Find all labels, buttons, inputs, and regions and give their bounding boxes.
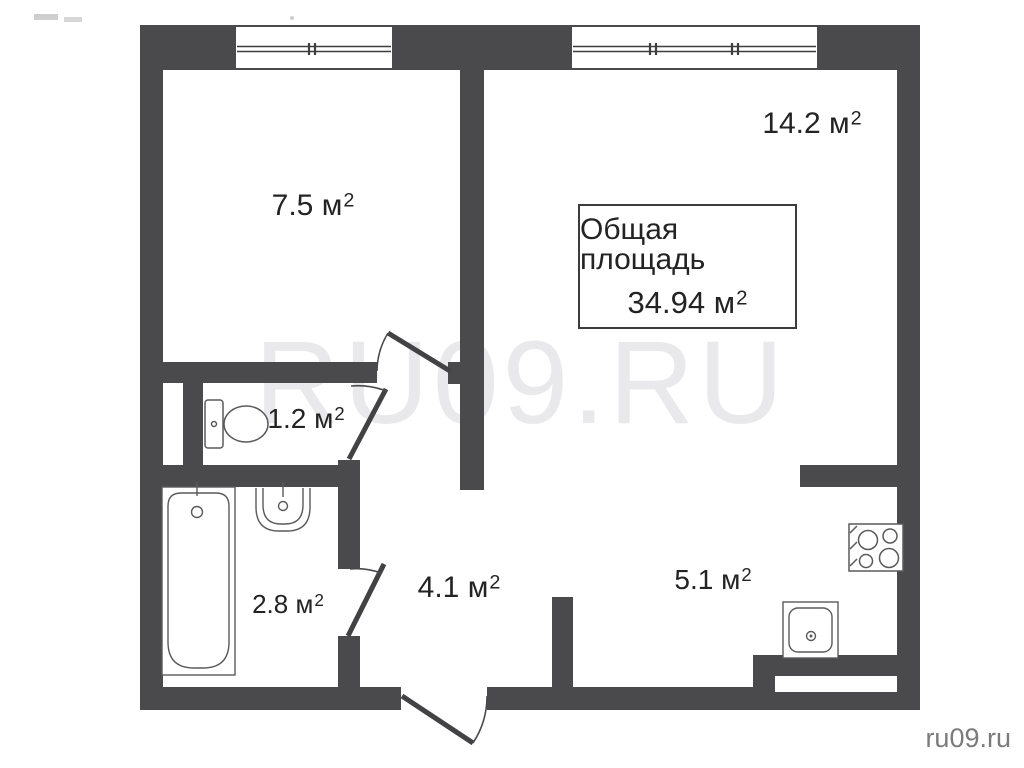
stove-fixture <box>849 524 903 571</box>
room-label-4-1: 4.1 м2 <box>418 573 501 603</box>
kitchen-wall-step <box>753 655 775 710</box>
total-value: 34.94 м <box>628 285 736 320</box>
room-label-2-8: 2.8 м2 <box>252 591 324 617</box>
area-sup: 2 <box>741 566 751 584</box>
area-sup: 2 <box>489 574 500 594</box>
area-value: 2.8 м <box>252 589 313 619</box>
toilet-tank <box>205 400 223 448</box>
bathtub-box <box>162 487 235 675</box>
area-value: 4.1 м <box>418 571 489 604</box>
total-area-title: Общая площадь <box>580 215 795 275</box>
wall-right <box>897 25 920 710</box>
fixtures <box>162 400 903 675</box>
door-entry <box>402 696 487 743</box>
area-sup: 2 <box>851 110 862 130</box>
area-value: 1.2 м <box>267 403 333 434</box>
speck <box>64 17 82 22</box>
total-area-value: 34.94 м2 <box>628 287 748 318</box>
total-sup: 2 <box>736 288 747 308</box>
wall-bottom-left <box>140 687 401 710</box>
duct-wall <box>183 383 203 465</box>
toilet-fixture <box>205 400 268 448</box>
kitchen-partition-stub <box>800 465 920 487</box>
area-sup: 2 <box>343 192 354 212</box>
bathtub-fixture <box>162 482 235 675</box>
room-label-5-1: 5.1 м2 <box>674 566 751 594</box>
total-area-box: Общая площадь 34.94 м2 <box>578 204 797 329</box>
wall-bottom-middle <box>487 687 775 710</box>
area-value: 5.1 м <box>674 564 740 595</box>
room-label-14-2: 14.2 м2 <box>762 109 861 139</box>
toilet-bowl <box>224 406 268 442</box>
speck <box>290 16 294 20</box>
bath-right-wall-lower <box>338 636 360 687</box>
area-value: 14.2 м <box>762 107 849 140</box>
room-label-1-2: 1.2 м2 <box>267 405 344 433</box>
door-bathroom <box>348 564 384 636</box>
area-sup: 2 <box>334 405 344 423</box>
bath-right-wall-upper <box>338 460 360 569</box>
window-right <box>572 27 817 68</box>
floor-plan-drawing <box>0 0 1024 768</box>
washbasin-fixture <box>256 482 310 531</box>
wall-bottom-right <box>775 692 920 710</box>
kitchen-sink-fixture <box>783 602 838 658</box>
hall-kitchen-divider <box>552 597 573 687</box>
area-value: 7.5 м <box>272 189 343 222</box>
door-toilet <box>349 386 386 459</box>
kitchen-sink-drain-dot <box>810 635 813 638</box>
floor-plan-canvas: RU09.RU <box>0 0 1024 768</box>
room-label-7-5: 7.5 м2 <box>272 191 355 221</box>
room-wc-partition <box>140 362 377 383</box>
door-jamb-stub <box>448 362 484 384</box>
door-room-top-left <box>377 333 450 371</box>
speck <box>34 14 58 20</box>
main-room-divider <box>460 66 484 490</box>
wc-bath-partition <box>140 465 360 487</box>
area-sup: 2 <box>314 592 324 609</box>
site-credit: ru09.ru <box>925 725 1011 752</box>
scan-artifacts <box>34 14 294 22</box>
